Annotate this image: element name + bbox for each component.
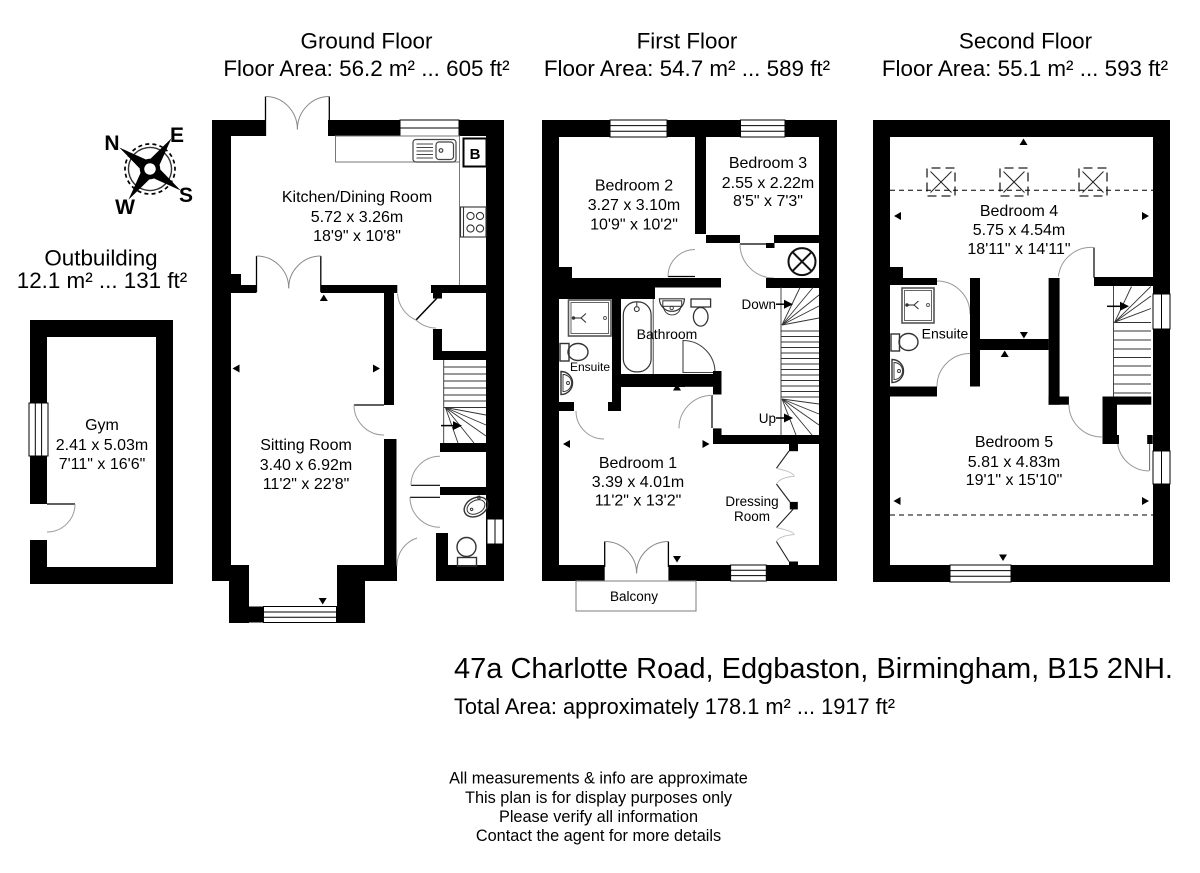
svg-text:3.39 x 4.01m: 3.39 x 4.01m [592,474,685,491]
svg-text:7'11" x 16'6": 7'11" x 16'6" [59,456,146,473]
svg-text:Ensuite: Ensuite [570,360,610,374]
svg-text:5.75 x 4.54m: 5.75 x 4.54m [973,222,1066,239]
svg-text:2.41 x 5.03m: 2.41 x 5.03m [56,437,149,454]
svg-text:B: B [470,146,481,163]
svg-text:47a Charlotte Road, Edgbaston,: 47a Charlotte Road, Edgbaston, Birmingha… [454,653,1173,685]
svg-text:Please verify all information: Please verify all information [499,808,698,826]
svg-text:Balcony: Balcony [610,589,658,604]
svg-text:10'9" x 10'2": 10'9" x 10'2" [590,217,678,234]
svg-text:3.27 x 3.10m: 3.27 x 3.10m [588,197,681,214]
svg-text:Bedroom 5: Bedroom 5 [975,434,1053,451]
svg-text:Bathroom: Bathroom [637,326,698,342]
svg-text:Total Area: approximately 178.: Total Area: approximately 178.1 m² ... 1… [454,694,895,719]
svg-text:Gym: Gym [85,417,119,434]
svg-text:W: W [115,196,135,219]
svg-text:Bedroom 4: Bedroom 4 [980,203,1058,220]
svg-text:This plan is for display purpo: This plan is for display purposes only [465,789,733,807]
svg-text:2.55 x 2.22m: 2.55 x 2.22m [722,175,815,192]
svg-text:First Floor: First Floor [637,29,738,54]
svg-text:Up: Up [759,411,776,426]
svg-text:Sitting Room: Sitting Room [260,437,352,454]
svg-text:N: N [104,132,119,155]
svg-text:Floor Area: 54.7 m² ... 589 ft: Floor Area: 54.7 m² ... 589 ft² [544,56,831,81]
svg-text:Second Floor: Second Floor [959,29,1093,54]
svg-text:Outbuilding: Outbuilding [44,246,157,271]
svg-text:Ground Floor: Ground Floor [301,29,433,54]
svg-text:Room: Room [734,509,770,524]
svg-text:Bedroom 3: Bedroom 3 [729,155,807,172]
svg-text:3.40 x 6.92m: 3.40 x 6.92m [260,457,353,474]
svg-text:Floor Area: 55.1 m² ... 593 ft: Floor Area: 55.1 m² ... 593 ft² [882,56,1169,81]
svg-text:8'5" x 7'3": 8'5" x 7'3" [733,193,803,210]
svg-text:Down: Down [741,297,776,312]
svg-text:Contact the agent for more det: Contact the agent for more details [476,827,721,845]
svg-text:Dressing: Dressing [725,494,778,509]
svg-text:5.72 x 3.26m: 5.72 x 3.26m [311,209,404,226]
svg-text:S: S [179,184,193,207]
svg-text:12.1 m² ... 131 ft²: 12.1 m² ... 131 ft² [17,268,188,293]
svg-text:Kitchen/Dining Room: Kitchen/Dining Room [282,189,432,206]
svg-text:Bedroom 2: Bedroom 2 [595,178,673,195]
svg-text:18'11" x 14'11": 18'11" x 14'11" [967,241,1070,258]
svg-text:11'2" x 22'8": 11'2" x 22'8" [263,476,350,493]
svg-text:Floor Area: 56.2 m² ... 605 ft: Floor Area: 56.2 m² ... 605 ft² [223,56,510,81]
svg-text:Bedroom 1: Bedroom 1 [599,455,677,472]
svg-text:18'9" x 10'8": 18'9" x 10'8" [313,228,401,245]
svg-text:11'2" x 13'2": 11'2" x 13'2" [595,493,682,510]
svg-text:All measurements & info are ap: All measurements & info are approximate [449,770,748,788]
svg-text:5.81 x 4.83m: 5.81 x 4.83m [968,454,1061,471]
svg-text:E: E [170,124,184,147]
svg-text:Ensuite: Ensuite [922,326,969,342]
svg-text:19'1" x 15'10": 19'1" x 15'10" [966,472,1063,489]
